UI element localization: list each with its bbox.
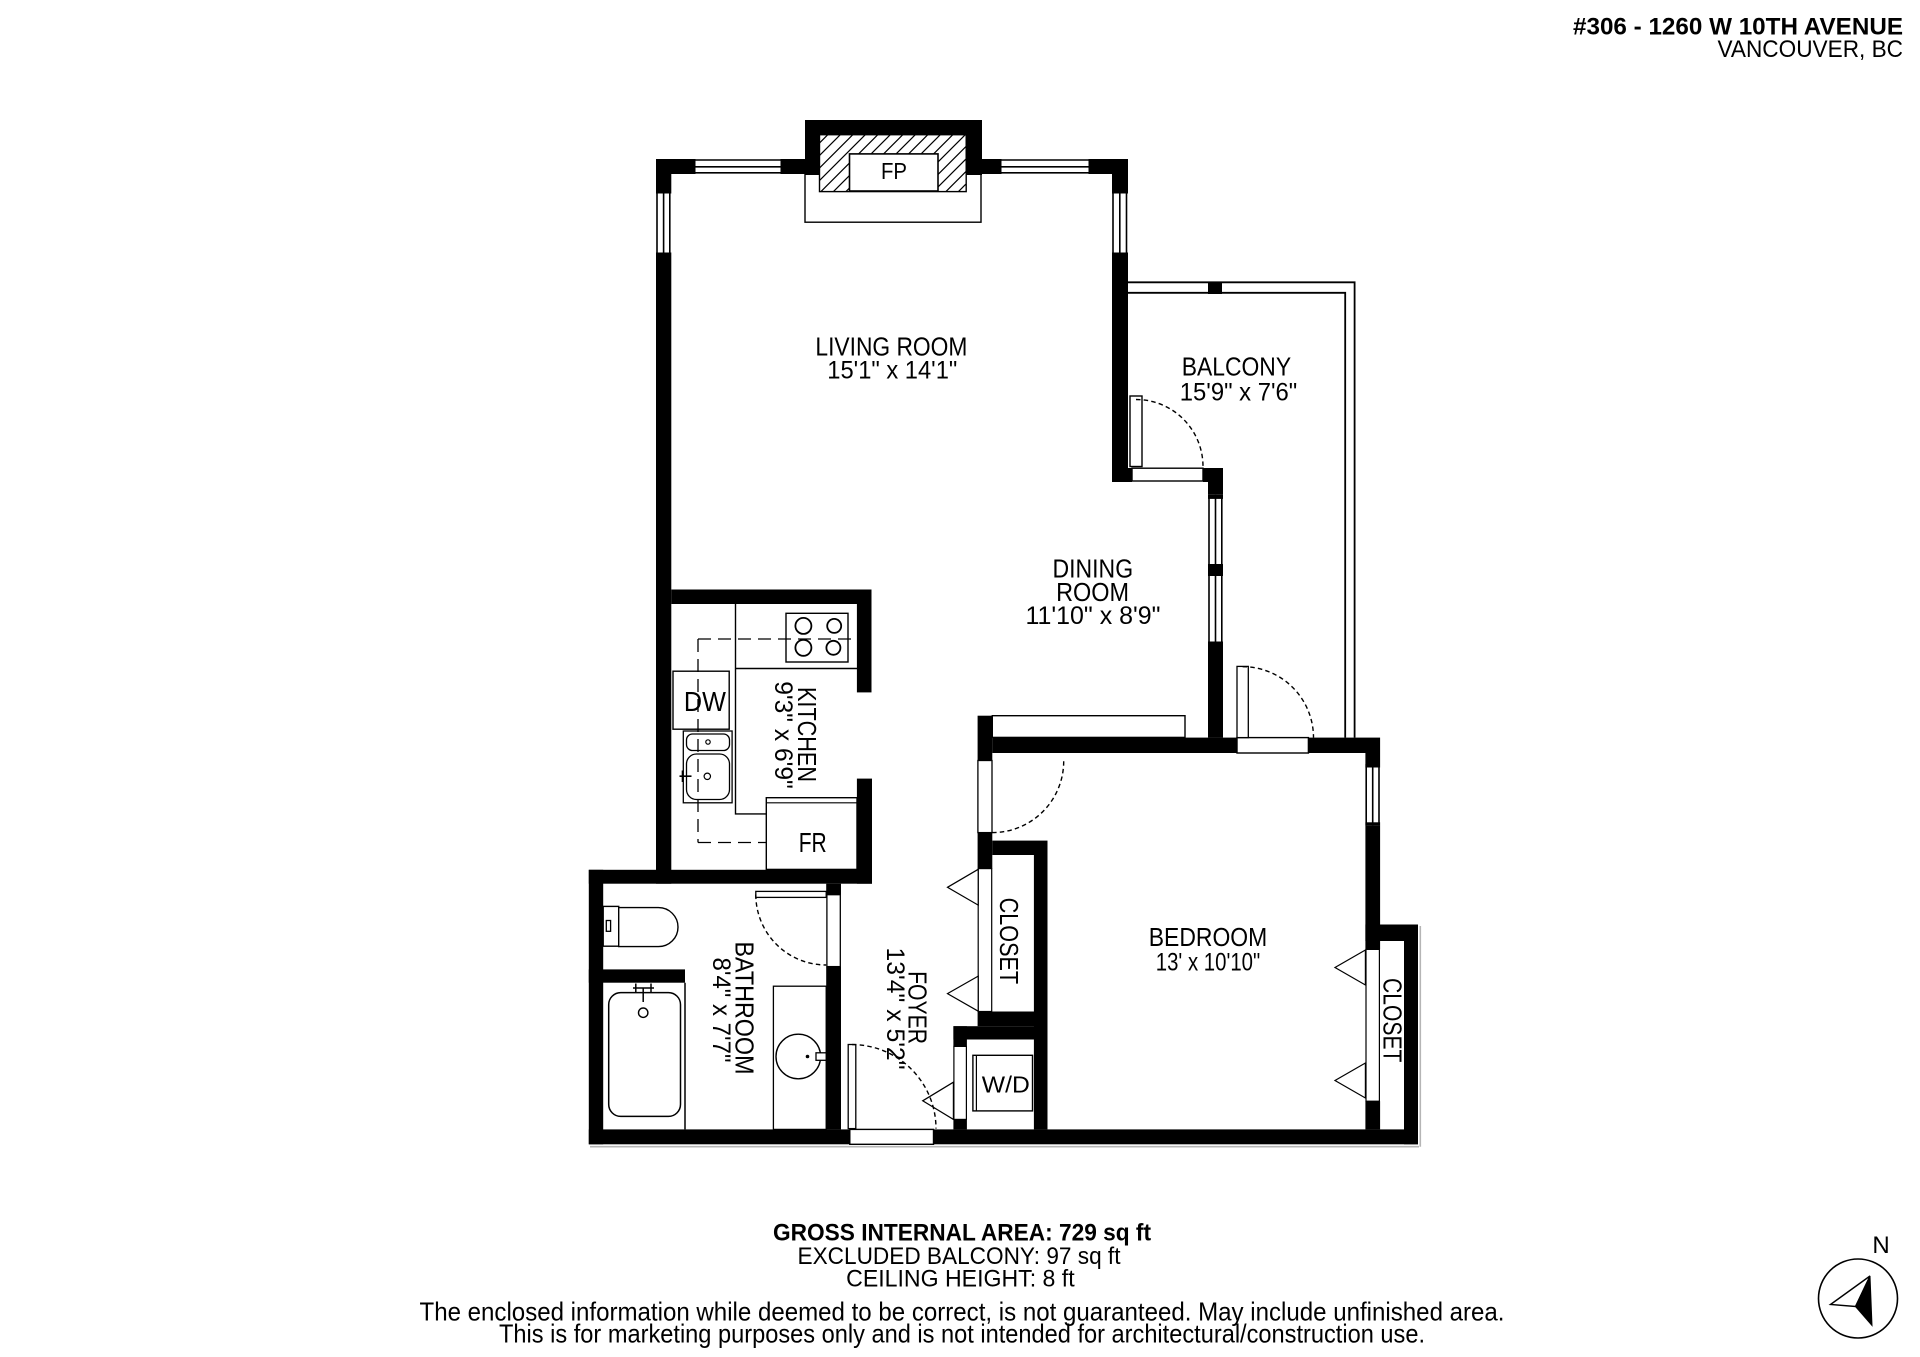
svg-text:CLOSET: CLOSET [1378, 978, 1408, 1062]
svg-text:This is for marketing purposes: This is for marketing purposes only and … [499, 1319, 1425, 1349]
svg-text:FP: FP [881, 158, 907, 184]
svg-text:FR: FR [799, 827, 827, 858]
svg-text:N: N [1872, 1232, 1889, 1259]
svg-text:15'1" x 14'1": 15'1" x 14'1" [827, 357, 957, 385]
svg-text:BEDROOM: BEDROOM [1149, 922, 1268, 952]
svg-text:CEILING HEIGHT: 8 ft: CEILING HEIGHT: 8 ft [846, 1266, 1075, 1293]
svg-text:15'9" x 7'6": 15'9" x 7'6" [1180, 378, 1298, 406]
svg-text:11'10" x 8'9": 11'10" x 8'9" [1026, 602, 1161, 630]
svg-text:9'3" x 6'9": 9'3" x 6'9" [769, 681, 797, 789]
svg-text:DW: DW [684, 686, 727, 717]
svg-text:W/D: W/D [982, 1072, 1030, 1098]
svg-text:VANCOUVER, BC: VANCOUVER, BC [1718, 36, 1904, 63]
svg-text:13'4" x 5'2": 13'4" x 5'2" [881, 948, 909, 1070]
svg-text:BALCONY: BALCONY [1182, 352, 1291, 382]
svg-text:CLOSET: CLOSET [994, 898, 1024, 985]
svg-text:13' x 10'10": 13' x 10'10" [1156, 949, 1260, 977]
svg-text:8'4" x 7'7": 8'4" x 7'7" [707, 958, 735, 1063]
